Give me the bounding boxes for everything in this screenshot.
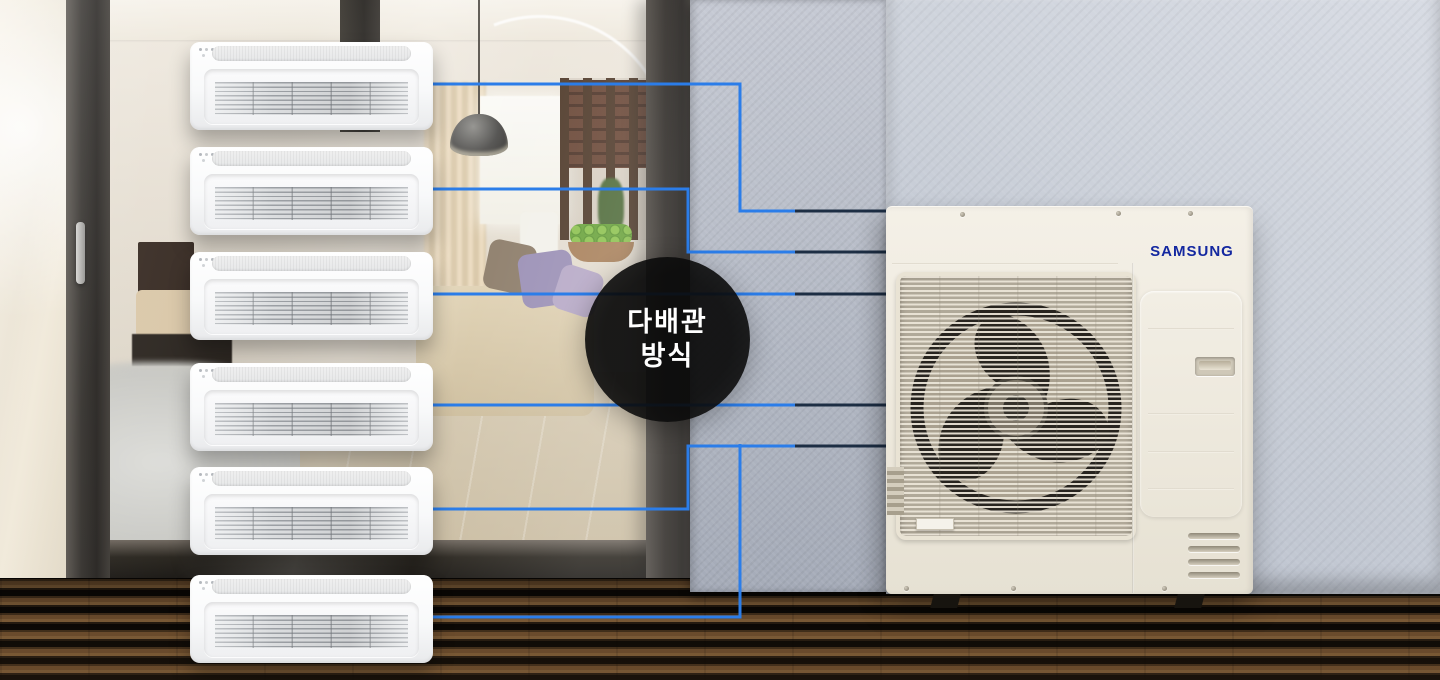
side-vent	[1188, 546, 1240, 552]
fan-grille	[896, 272, 1136, 540]
status-led-dots	[199, 258, 202, 261]
unit-foot	[930, 594, 960, 608]
air-intake-grille	[212, 46, 411, 61]
unit-foot	[1174, 594, 1204, 608]
louver-slats	[215, 507, 408, 540]
louver-slats	[215, 82, 408, 115]
status-led-dots	[199, 48, 202, 51]
grille-label	[916, 518, 954, 530]
status-led-dots	[199, 581, 202, 584]
scene: 다배관 방식	[0, 0, 1440, 680]
air-intake-grille	[212, 256, 411, 271]
panel-crease	[1148, 328, 1234, 330]
screw	[960, 212, 965, 217]
air-intake-grille	[212, 471, 411, 486]
louver-panel	[204, 279, 419, 334]
samsung-logo: SAMSUNG	[1142, 243, 1242, 259]
indoor-unit	[190, 363, 433, 451]
side-vent	[1188, 533, 1240, 539]
service-panel	[1140, 291, 1242, 517]
screw	[1188, 211, 1193, 216]
panel-seam	[892, 263, 1118, 265]
louver-slats	[215, 187, 408, 220]
status-led-dots	[199, 369, 202, 372]
air-intake-grille	[212, 367, 411, 382]
louver-slats	[215, 403, 408, 436]
indoor-unit	[190, 467, 433, 555]
panel-crease	[1148, 488, 1234, 490]
side-vent	[1188, 559, 1240, 565]
louver-slats	[215, 292, 408, 325]
louver-slats	[215, 615, 408, 648]
multi-pipe-badge: 다배관 방식	[585, 257, 750, 422]
badge-line1: 다배관	[627, 309, 708, 336]
indoor-unit	[190, 42, 433, 130]
screw	[904, 586, 909, 591]
status-led-dots	[199, 473, 202, 476]
panel-handle	[1195, 357, 1235, 376]
louver-panel	[204, 69, 419, 124]
outdoor-unit-body: SAMSUNG	[886, 206, 1253, 594]
panel-crease	[1148, 413, 1234, 415]
louver-panel	[204, 174, 419, 229]
side-vent	[1188, 572, 1240, 578]
edge-ridges	[887, 467, 904, 515]
indoor-unit	[190, 252, 433, 340]
indoor-unit	[190, 147, 433, 235]
louver-panel	[204, 602, 419, 657]
status-led-dots	[199, 153, 202, 156]
air-intake-grille	[212, 579, 411, 594]
screw	[1011, 586, 1016, 591]
screw	[1162, 586, 1167, 591]
panel-seam	[1132, 263, 1134, 593]
indoor-unit	[190, 575, 433, 663]
handle-slot	[1199, 361, 1231, 370]
louver-panel	[204, 390, 419, 445]
panel-crease	[1148, 451, 1234, 453]
louver-panel	[204, 494, 419, 549]
air-intake-grille	[212, 151, 411, 166]
grille-slats	[900, 276, 1132, 536]
screw	[1116, 211, 1121, 216]
badge-line2: 방식	[641, 343, 695, 370]
outdoor-unit: SAMSUNG	[886, 206, 1253, 608]
